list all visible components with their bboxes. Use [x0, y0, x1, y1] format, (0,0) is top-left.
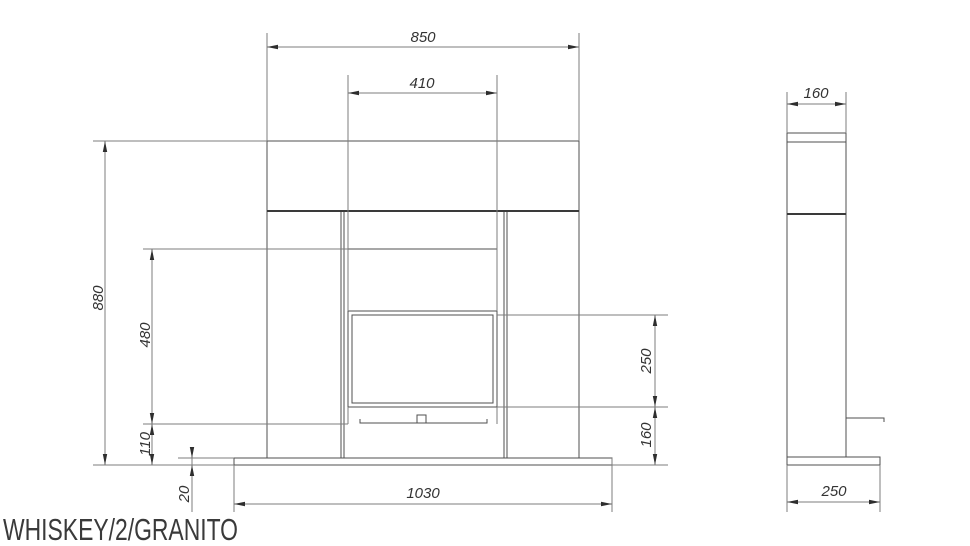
- side-base-plinth: [787, 457, 880, 465]
- firebox-glass-outer: [348, 311, 497, 407]
- side-view-linework: [787, 133, 884, 465]
- burner-tray: [360, 419, 487, 423]
- dim-side-250-label: 250: [820, 483, 847, 500]
- burner-knob: [417, 415, 426, 423]
- dimension-labels: 850 410 880 480 110 20 1030 250 160 160 …: [90, 29, 847, 503]
- side-wall-ledge: [846, 418, 884, 422]
- dim-side-160-label: 160: [803, 85, 829, 102]
- dim-850-label: 850: [410, 29, 436, 46]
- dimension-lines: [105, 47, 880, 504]
- dim-410-label: 410: [409, 75, 435, 92]
- dim-20-label: 20: [176, 485, 193, 503]
- dim-880-label: 880: [90, 285, 107, 311]
- front-outer-outline: [267, 141, 579, 458]
- technical-drawing: 850 410 880 480 110 20 1030 250 160 160 …: [0, 0, 970, 546]
- dim-480-label: 480: [137, 322, 154, 348]
- dim-250-glass-label: 250: [638, 348, 655, 375]
- firebox-glass-inner: [352, 315, 493, 403]
- front-view-linework: [234, 141, 612, 465]
- front-base-plinth: [234, 458, 612, 465]
- dim-160-lower-label: 160: [638, 422, 655, 448]
- dim-110-label: 110: [137, 431, 154, 456]
- front-niche-edges: [341, 211, 507, 458]
- dim-1030-label: 1030: [406, 485, 440, 502]
- drawing-canvas: 850 410 880 480 110 20 1030 250 160 160 …: [0, 0, 970, 546]
- drawing-title: WHISKEY/2/GRANITO: [3, 512, 238, 546]
- side-body-outline: [787, 133, 846, 457]
- extension-lines: [93, 33, 880, 512]
